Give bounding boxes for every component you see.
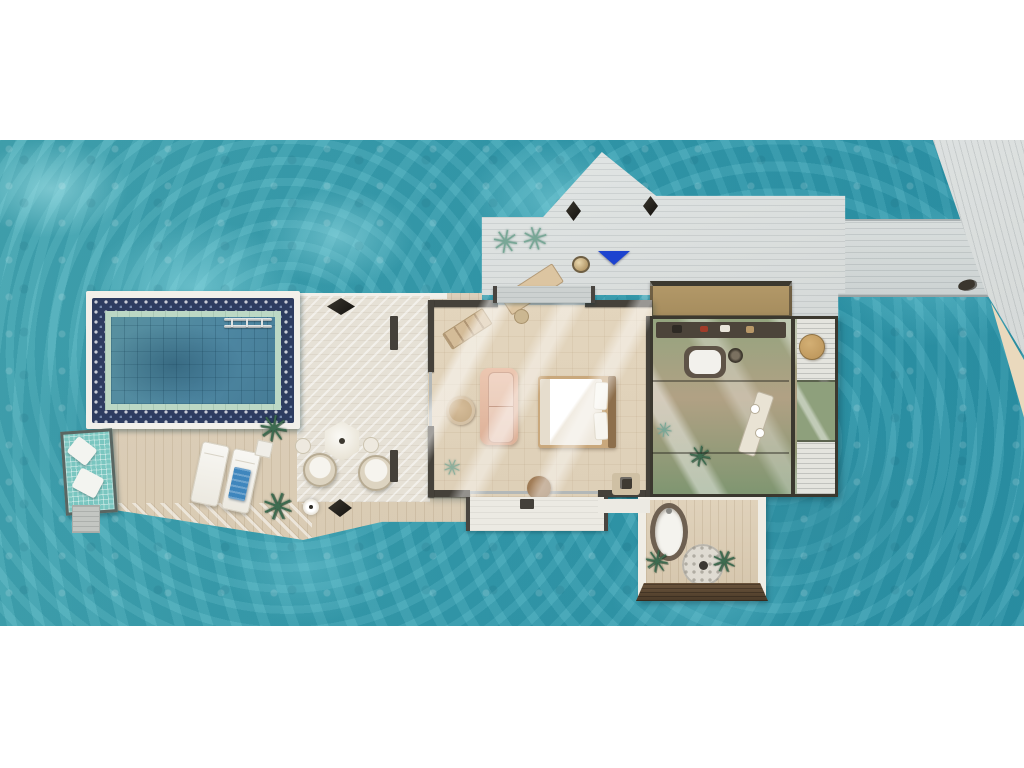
entrance-marker-icon: [598, 251, 630, 265]
wall: [428, 300, 434, 372]
shell-decor: [572, 256, 590, 273]
vanity-item: [700, 326, 708, 332]
indoor-bathtub-basin: [689, 350, 721, 374]
floor-lamp: [303, 499, 319, 515]
side-walkway: [598, 499, 650, 513]
wicker-chair: [358, 455, 394, 491]
bed-pillow: [593, 382, 609, 411]
pool-ladder-rung: [246, 318, 248, 327]
floor-plan-render: ✳ ✳ ✳ ✳: [0, 0, 1024, 768]
wall-post: [390, 316, 398, 350]
sofa-cushion-split: [489, 406, 513, 407]
potted-plant-icon: ✳: [255, 410, 291, 451]
glass-frame: [791, 316, 795, 497]
glass-frame: [652, 452, 789, 454]
potted-plant-icon: ✳: [654, 419, 674, 442]
side-table: [363, 437, 379, 453]
stool: [799, 334, 825, 360]
side-table: [295, 438, 311, 454]
wall: [428, 300, 498, 307]
bed-pillow: [593, 412, 609, 441]
desk-chair: [514, 309, 529, 324]
wash-basin: [728, 348, 743, 363]
headboard: [608, 376, 616, 448]
privacy-wall: [636, 583, 768, 601]
sliding-glass-door: [429, 372, 432, 426]
potted-plant-icon: ✳: [686, 441, 714, 473]
pool-ladder-rung: [231, 318, 233, 327]
swimming-pool: [111, 317, 275, 404]
pouf: [446, 396, 475, 425]
bed-throw: [540, 379, 550, 445]
roof-canopy: [650, 281, 792, 316]
wicker-chair: [303, 453, 337, 487]
rear-porch: [466, 497, 608, 531]
vanity-item: [720, 325, 730, 332]
potted-plant-icon: ✳: [489, 224, 521, 260]
entry-porch: [493, 286, 595, 303]
sink: [750, 404, 760, 414]
sofa-cushions: [488, 372, 514, 443]
sink: [755, 428, 765, 438]
vanity-item: [746, 326, 754, 333]
potted-plant-icon: ✳: [642, 546, 672, 580]
wall: [428, 490, 470, 497]
water-steps: [72, 505, 100, 533]
pool-ladder-rung: [261, 318, 263, 327]
glass-frame: [652, 380, 789, 382]
bath-faucet: [666, 508, 672, 514]
wall: [428, 426, 434, 497]
mat-decor: [620, 477, 632, 489]
glass-roof-panel: [797, 380, 835, 442]
doormat: [520, 499, 534, 509]
shower-head: [699, 561, 708, 570]
wall: [585, 300, 652, 307]
vanity-item: [672, 325, 682, 333]
wall-post: [390, 450, 398, 482]
